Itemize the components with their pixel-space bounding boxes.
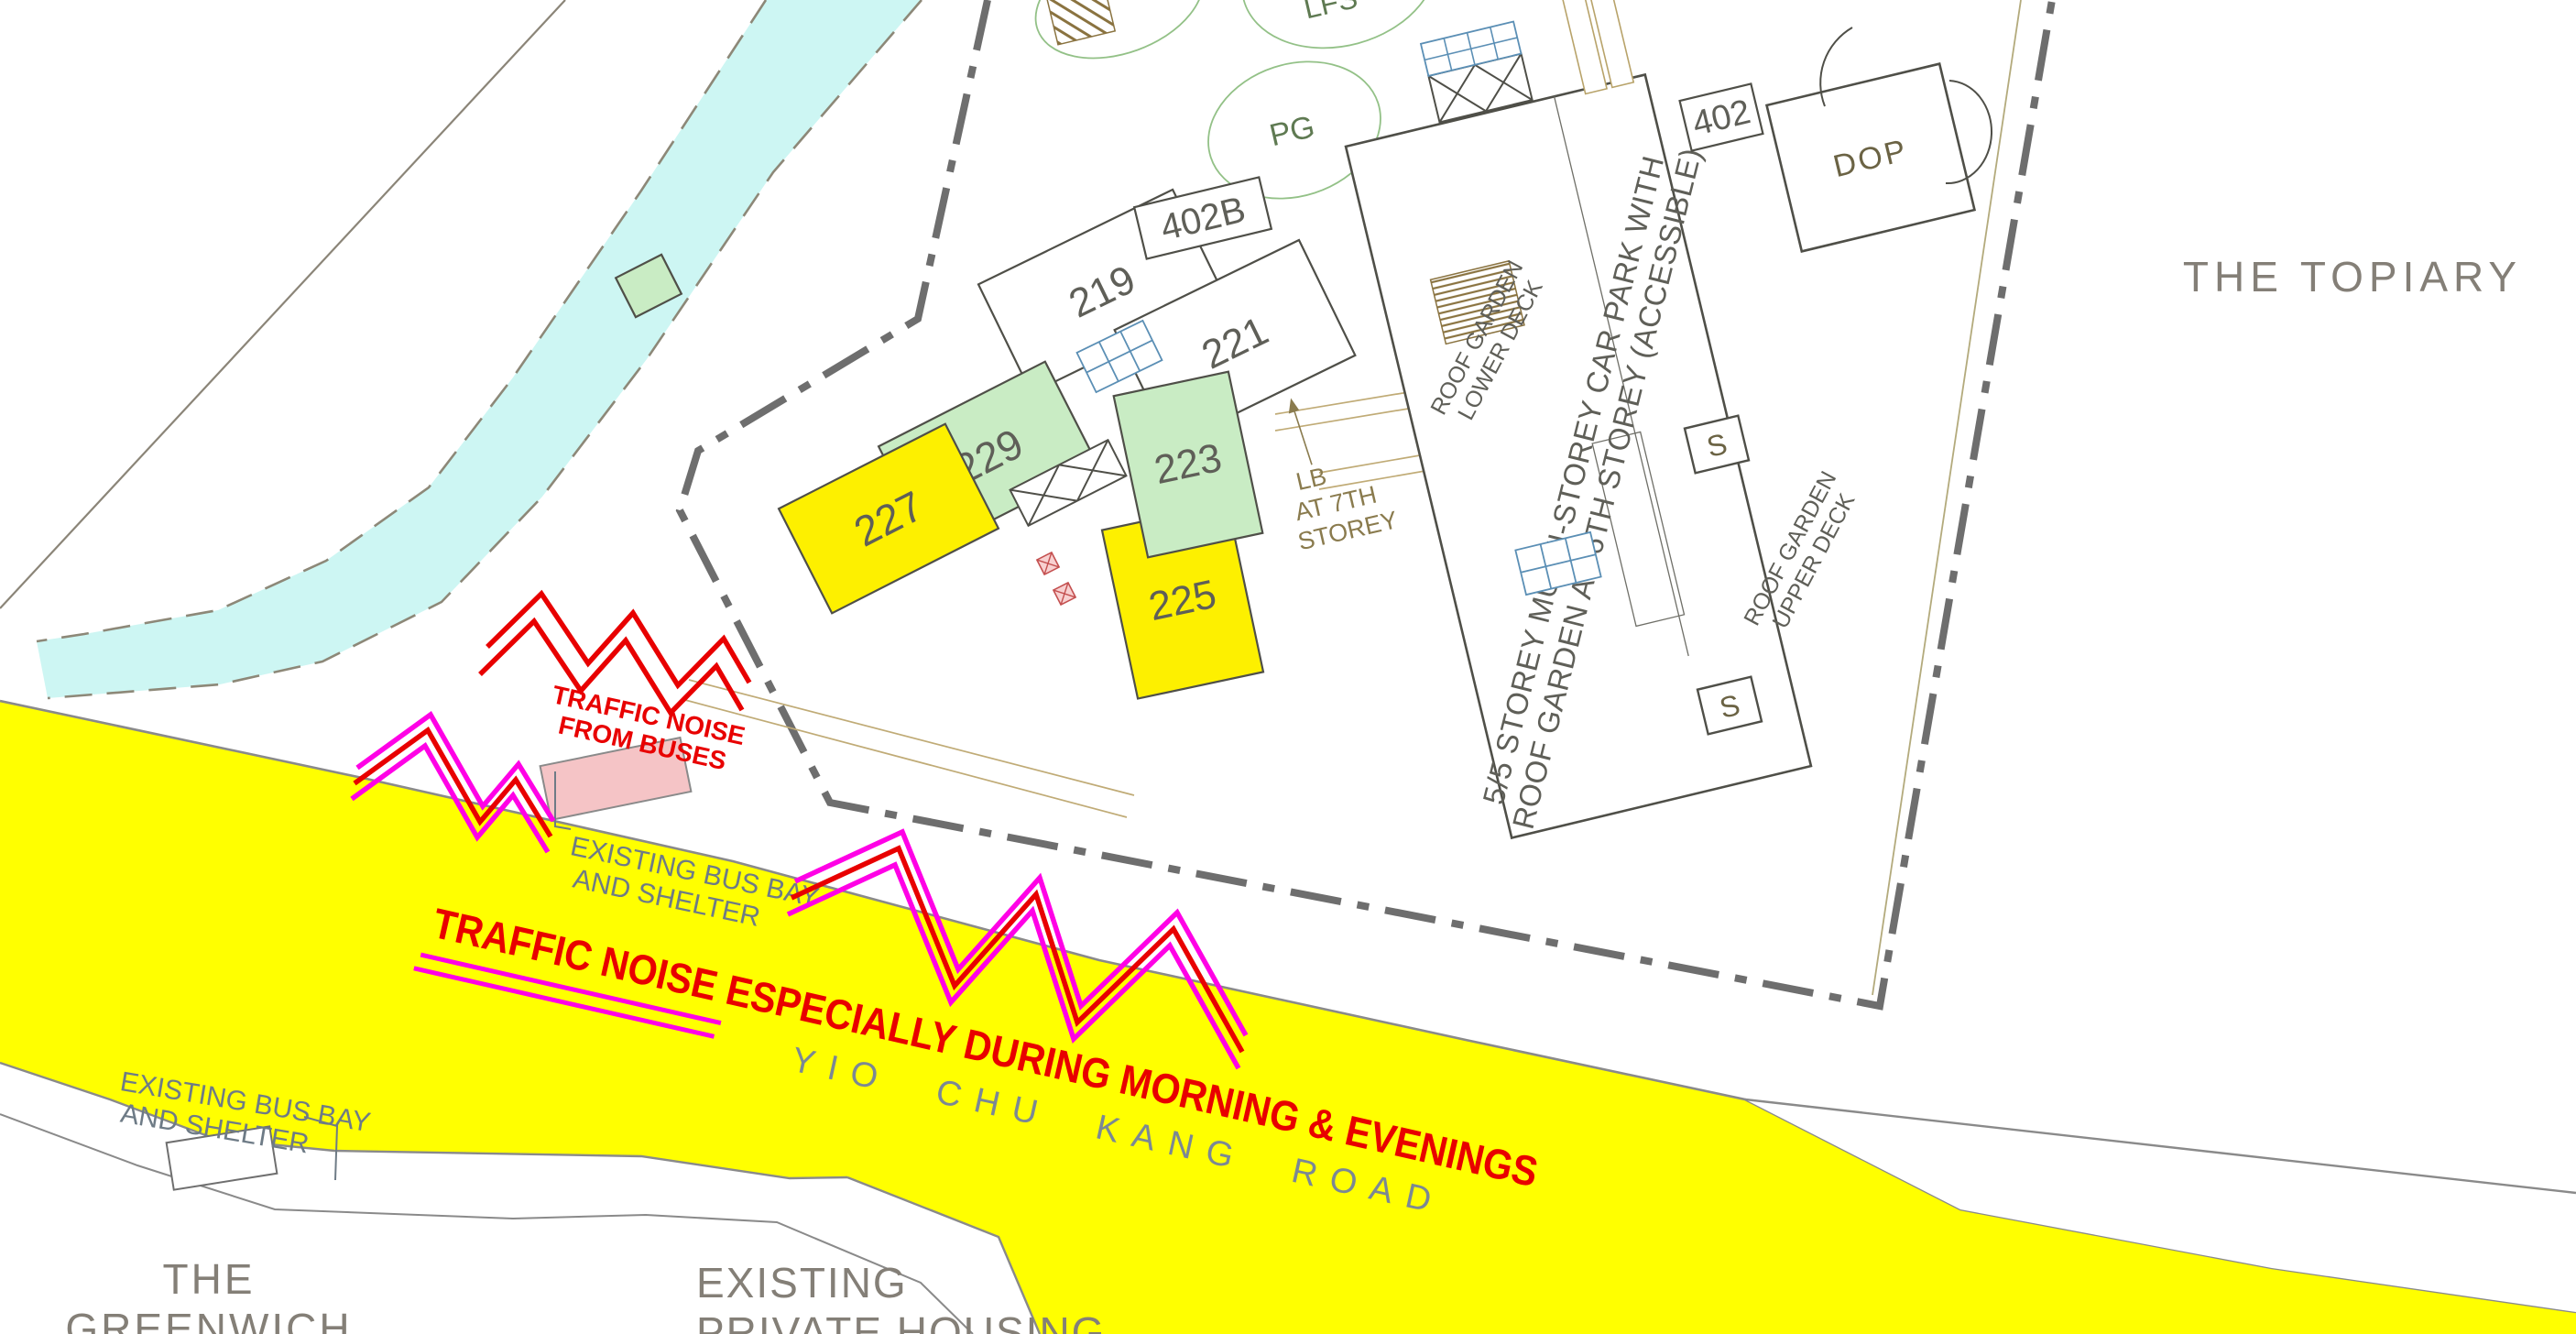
linkbridge-402 <box>1560 0 1634 93</box>
topiary-label: THE TOPIARY <box>2183 253 2522 301</box>
lfs-label: LFS <box>1301 0 1360 25</box>
hatch-plot-rect <box>1047 0 1115 45</box>
footpath-a <box>689 680 1134 795</box>
greenwich-line1: THE <box>163 1255 256 1303</box>
block-402b-tag: 402B <box>1134 177 1272 258</box>
site-plan-drawing: PG PG LFS 219 221 229 227 225 223 402B <box>0 0 2576 1334</box>
site-plan-canvas: PG PG LFS 219 221 229 227 225 223 402B <box>0 0 2576 1334</box>
private-housing-line1: EXISTING <box>696 1259 908 1307</box>
pg-label-1: PG <box>1266 109 1317 153</box>
greenwich-line2: GREENWICH <box>65 1305 352 1334</box>
hatch-plot <box>1047 0 1115 45</box>
lb-line1: LB <box>1293 462 1329 496</box>
lb-leader-line <box>1293 404 1312 466</box>
lb-label: LB AT 7TH STOREY <box>1267 381 1401 556</box>
footpath-b <box>685 700 1127 817</box>
lift-icon-2 <box>1053 583 1075 605</box>
dop-building: DOP <box>1767 64 1975 252</box>
lift-icon-1 <box>1037 552 1059 574</box>
block-402-tag: 402 <box>1680 83 1763 150</box>
canal-water <box>37 0 922 698</box>
private-housing-line2: PRIVATE HOUSING <box>696 1308 1106 1334</box>
